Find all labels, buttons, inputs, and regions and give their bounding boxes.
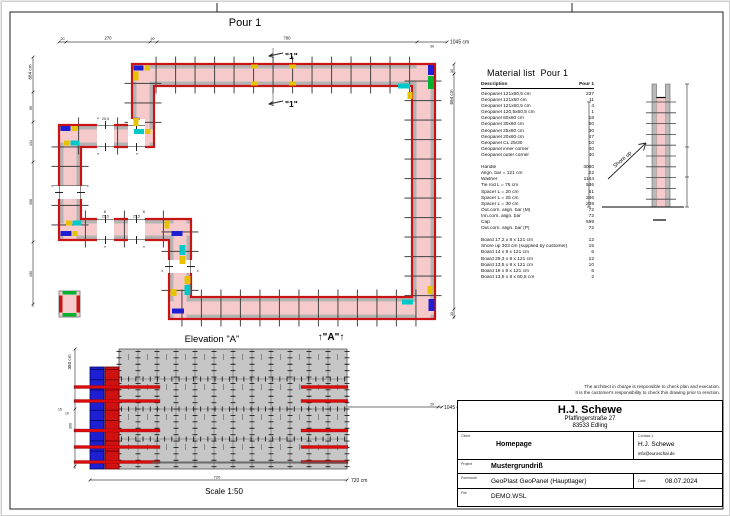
title-block-client-row: Client Homepage Contact 1 H.J. Schewe in…: [458, 432, 722, 460]
material-quantity: 72: [589, 226, 594, 232]
svg-text:15: 15: [58, 408, 62, 412]
svg-text:20: 20: [430, 403, 434, 407]
section-marker-label: "1": [285, 51, 298, 61]
section-view: Shore up: [587, 84, 689, 220]
material-name: Geopanel outer corner: [481, 153, 529, 159]
elevation-scale: Scale 1:50: [205, 487, 243, 496]
material-name: Out.corn. align. bar (P): [481, 226, 530, 232]
plan-accents-cyan: [71, 84, 414, 305]
svg-text:300: 300: [69, 423, 73, 429]
svg-text:684 cm: 684 cm: [28, 64, 33, 79]
disclaimer-notes: The architect in charge is responsible t…: [460, 384, 720, 395]
material-list: Material list Pour 1 Description Pour 1 …: [481, 68, 594, 281]
svg-text:90: 90: [29, 106, 33, 110]
svg-text:270: 270: [105, 36, 113, 41]
cad-drawing-sheet: { "drawing": { "title": "Pour 1" }, "pla…: [0, 0, 730, 516]
plan-accents-green: [428, 76, 434, 89]
date-label: Date: [638, 479, 646, 483]
plan-title: Pour 1: [229, 17, 261, 29]
contact-email: info@euroschal.de: [638, 451, 675, 456]
column-description: Description: [481, 82, 507, 87]
svg-text:720 cm: 720 cm: [351, 478, 367, 484]
file-label: File: [461, 491, 467, 495]
title-block-file-row: File DEMO.WSL: [458, 489, 722, 505]
svg-text:780: 780: [284, 36, 292, 41]
company-name: H.J. Schewe: [458, 401, 722, 416]
svg-text:380 cm: 380 cm: [67, 354, 72, 369]
company-address-2: 83533 Edling: [458, 423, 722, 430]
section-marker-label: "1": [285, 99, 298, 109]
formwork-label: Formwork: [461, 476, 477, 480]
svg-text:694 cm: 694 cm: [449, 89, 454, 104]
svg-text:358: 358: [29, 199, 33, 205]
shore-up-arrow: [608, 143, 646, 179]
plan-wall-panels: [59, 64, 435, 319]
material-list-header: Description Pour 1: [481, 82, 594, 89]
client-label: Client: [461, 434, 470, 438]
svg-text:10: 10: [65, 412, 69, 416]
material-row: Board 13,5 x 8 x 60,5 cm 2: [481, 275, 594, 281]
plan-accents-yellow: [64, 65, 433, 297]
opening-label: 25,5: [102, 117, 109, 121]
opening-label: 25,5: [102, 215, 109, 219]
elevation-title: Elevation "A": [185, 334, 240, 345]
title-block-project-row: Project Mustergrundriß: [458, 460, 722, 474]
divider: [633, 474, 634, 488]
svg-text:20: 20: [61, 37, 65, 41]
material-list-title: Material list Pour 1: [487, 68, 594, 78]
file-value: DEMO.WSL: [491, 493, 526, 500]
drawing-page: Pour 1: [1, 1, 730, 516]
svg-text:30: 30: [450, 312, 454, 316]
disclaimer-line-2: It is the customer's responsibility to c…: [460, 390, 720, 396]
elevation-view: Elevation "A": [58, 334, 463, 496]
client-value: Homepage: [496, 441, 532, 448]
view-arrow-a: ↑"A"↑: [318, 332, 345, 343]
formwork-value: GeoPlast GeoPanel (Hauptlager): [491, 478, 586, 485]
svg-text:1045 cm: 1045 cm: [450, 40, 469, 46]
plan-wall-concrete: [59, 64, 435, 319]
material-quantity: 2: [591, 275, 594, 281]
project-label: Project: [461, 462, 472, 466]
svg-text:30: 30: [450, 69, 454, 73]
svg-text:30: 30: [430, 45, 434, 49]
title-block-formwork-row: Formwork GeoPlast GeoPanel (Hauptlager) …: [458, 474, 722, 489]
column-quantity: Pour 1: [579, 82, 594, 87]
plan-formwork-faces: [59, 64, 435, 319]
contact-label: Contact 1: [638, 434, 653, 438]
date-value: 08.07.2024: [665, 478, 698, 485]
project-value: Mustergrundriß: [491, 463, 543, 470]
title-block-company-row: H.J. Schewe Pfaffingerstraße 27 83533 Ed…: [458, 401, 722, 432]
material-list-rows: Geopanel 121x60,5 cm 237 Geopanel 121x60…: [481, 92, 594, 281]
contact-name: H.J. Schewe: [638, 441, 675, 448]
svg-text:134: 134: [29, 140, 33, 146]
plan-view: Pour 1: [28, 17, 470, 343]
plan-accents-blue: [61, 65, 435, 314]
plan-tie-rods: [70, 75, 423, 308]
material-quantity: 40: [589, 153, 594, 159]
company-address-1: Pfaffingerstraße 27: [458, 416, 722, 423]
svg-text:190: 190: [29, 271, 33, 277]
title-block: H.J. Schewe Pfaffingerstraße 27 83533 Ed…: [457, 400, 723, 507]
opening-label: 25,5: [133, 215, 140, 219]
material-name: Board 13,5 x 8 x 60,5 cm: [481, 275, 534, 281]
shore-up-label: Shore up: [612, 150, 633, 169]
divider: [633, 432, 634, 459]
svg-text:720: 720: [214, 475, 221, 480]
plan-column: [59, 291, 80, 317]
svg-text:20: 20: [151, 37, 155, 41]
